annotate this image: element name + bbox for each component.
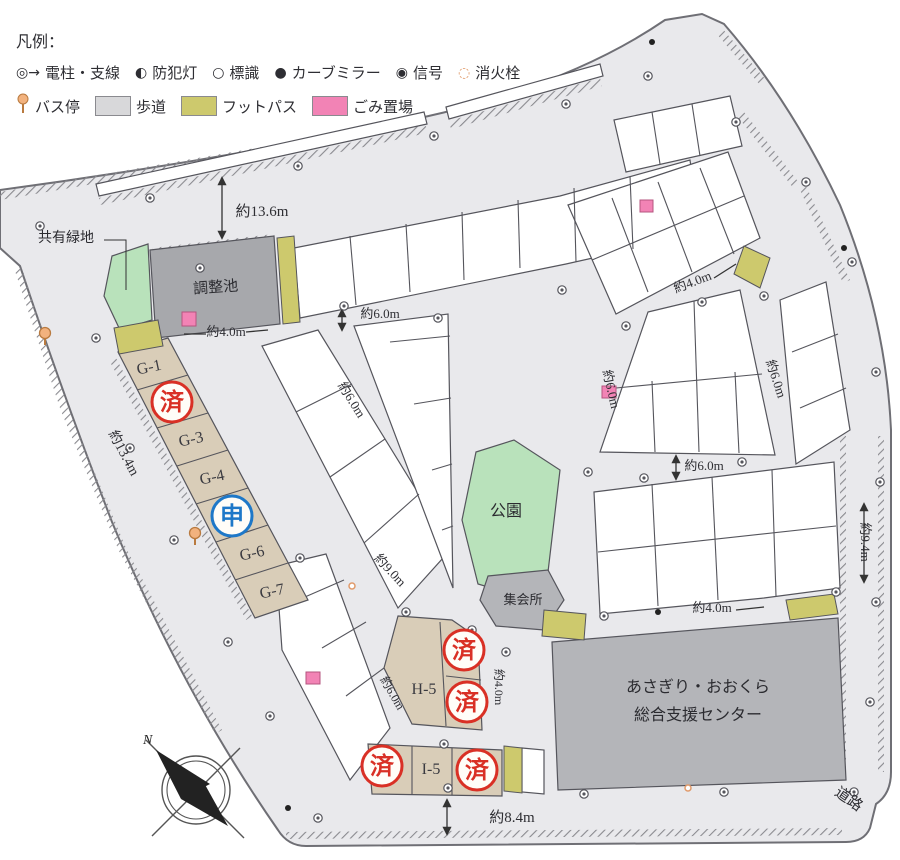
garbage-swatch [312,96,348,116]
utility-pole-icon [760,292,768,300]
signal-label: 信号 [413,62,443,83]
road-width-measurement: 約6.0m [360,306,399,321]
utility-pole-icon [698,298,706,306]
utility-pole-icon [434,314,442,322]
utility-pole-icon [732,118,740,126]
legend-row-symbols: ◎→電柱・支線◐防犯灯○標識●カーブミラー◉信号◌消火栓 [16,62,576,83]
svg-text:済: 済 [465,756,490,784]
utility-pole-icon [558,286,566,294]
utility-pole-icon [720,788,728,796]
bus-stop-icon [16,93,30,119]
utility-pole-icon [314,814,322,822]
bus-stop-label: バス停 [35,96,80,117]
sold-stamp: 済 [152,382,192,422]
sold-stamp: 済 [457,750,497,790]
sidewalk-swatch-item: 歩道 [95,96,166,117]
utility-pole-icon [266,712,274,720]
utility-pole-icon [444,784,452,792]
sign-icon-item: ○標識 [212,62,259,83]
sign-icon: ○ [212,66,224,80]
utility-pole-icon [224,638,232,646]
utility-pole-icon [584,468,592,476]
security-light-label: 防犯灯 [152,62,197,83]
utility-pole-icon [872,368,880,376]
site-plan-map: N 共有緑地調整池公園集会所あさぎり・おおくら総合支援センター道路 G-1G-3… [0,0,900,860]
svg-text:済: 済 [455,688,480,716]
security-light-icon-item: ◐防犯灯 [135,62,197,83]
fire-hydrant-icon: ◌ [458,66,470,80]
legend-title: 凡例： [16,28,576,52]
sidewalk-swatch [95,96,131,116]
utility-pole-icon [296,554,304,562]
bus-stop-icon-item: バス停 [16,93,80,119]
utility-pole-icon [848,258,856,266]
utility-pole-icon [876,478,884,486]
utility-pole-icon [196,264,204,272]
utility-pole-icon [872,598,880,606]
road-width-measurement: 約6.0m [684,458,723,473]
utility-pole-label: 電柱・支線 [45,62,120,83]
road-width-measurement: 約9.4m [858,522,873,561]
curve-mirror-icon-item: ●カーブミラー [274,62,380,83]
svg-text:済: 済 [370,752,395,780]
sidewalk-label: 歩道 [136,96,166,117]
fire-hydrant-icon [685,785,691,791]
svg-text:済: 済 [160,388,185,416]
utility-pole-icon [440,740,448,748]
sold-stamp: 済 [447,682,487,722]
utility-pole-icon [580,790,588,798]
security-light-icon: ◐ [135,66,147,80]
curve-mirror-icon [655,609,661,615]
sold-stamp: 済 [444,630,484,670]
utility-pole-icon [640,474,648,482]
curve-mirror-icon: ● [274,66,286,80]
meeting-hall-label: 集会所 [503,592,542,607]
block-small-south [522,748,544,794]
lot-number-label: H-5 [412,681,437,698]
legend-row-areas: バス停歩道フットパスごみ置場 [16,93,576,119]
park-label: 公園 [490,503,522,520]
road-width-measurement: 約4.0m [206,324,245,339]
utility-pole-icon [294,162,302,170]
utility-pole-icon [644,72,652,80]
fire-hydrant-icon [349,583,355,589]
garbage-swatch-item: ごみ置場 [312,96,413,117]
curve-mirror-icon [649,39,655,45]
sign-label: 標識 [229,62,259,83]
utility-pole-icon [622,322,630,330]
utility-pole-icon [170,536,178,544]
utility-pole-icon [866,698,874,706]
shared-green-label: 共有緑地 [38,230,94,246]
map-canvas: N 共有緑地調整池公園集会所あさぎり・おおくら総合支援センター道路 G-1G-3… [0,0,900,860]
utility-pole-icon [340,302,348,310]
utility-pole-icon [738,458,746,466]
utility-pole-icon [600,612,608,620]
footpath-label: フットパス [222,96,297,117]
compass-north-label: N [142,733,153,748]
utility-pole-icon [36,222,44,230]
signal-icon-item: ◉信号 [396,62,443,83]
fire-hydrant-icon-item: ◌消火栓 [458,62,520,83]
utility-pole-icon [146,194,154,202]
svg-text:申: 申 [220,503,244,530]
footpath-swatch-item: フットパス [181,96,297,117]
utility-pole-icon [832,588,840,596]
utility-pole-icon: ◎→ [16,66,40,80]
utility-pole-icon-item: ◎→電柱・支線 [16,62,120,83]
sold-stamp: 済 [362,746,402,786]
utility-pole-icon [402,608,410,616]
footpath-swatch [181,96,217,116]
road-width-measurement: 約4.0m [492,669,507,706]
support-center-label-1: あさぎり・おおくら [626,678,770,696]
signal-icon: ◉ [396,66,408,80]
curve-mirror-icon [841,245,847,251]
applied-stamp: 申 [212,496,252,536]
road-width-measurement: 約13.6m [236,203,289,220]
curve-mirror-icon [285,805,291,811]
support-center-label-2: 総合支援センター [634,706,762,724]
retention-pond-label: 調整池 [193,277,239,297]
lot-number-label: I-5 [422,761,441,778]
svg-text:済: 済 [452,636,477,664]
fire-hydrant-label: 消火栓 [475,62,520,83]
support-center-area [552,618,846,790]
utility-pole-icon [802,178,810,186]
utility-pole-icon [92,334,100,342]
utility-pole-icon [430,132,438,140]
road-width-measurement: 約8.4m [489,809,535,826]
legend: 凡例： ◎→電柱・支線◐防犯灯○標識●カーブミラー◉信号◌消火栓 バス停歩道フッ… [16,28,576,129]
garbage-label: ごみ置場 [353,96,413,117]
utility-pole-icon [502,648,510,656]
road-width-measurement: 約4.0m [692,600,731,615]
curve-mirror-label: カーブミラー [292,62,381,83]
